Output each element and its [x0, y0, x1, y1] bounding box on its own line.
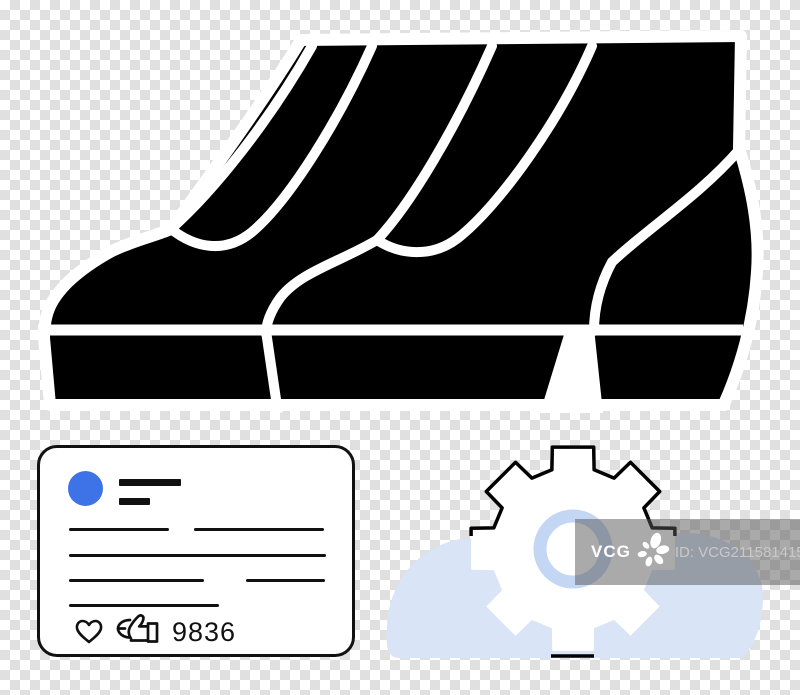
boot-silhouette [44, 36, 758, 405]
text-line [69, 528, 169, 531]
text-line [69, 579, 204, 582]
subtitle-bar [119, 498, 150, 505]
text-line [194, 528, 324, 531]
text-line [246, 579, 325, 582]
watermark-bar: VCG ID: VCG211581415103 [575, 519, 800, 585]
like-count: 9836 [172, 619, 236, 646]
watermark-id-text: ID: VCG211581415103 [675, 544, 800, 561]
watermark-brand: VCG [591, 542, 631, 562]
social-post-card: 9836 [37, 445, 355, 657]
text-line [69, 554, 326, 557]
text-line [69, 604, 219, 607]
vcg-flower-icon [635, 530, 671, 574]
username-bar [119, 479, 181, 486]
boots-pair-icon [38, 36, 758, 413]
heart-icon[interactable] [74, 618, 104, 645]
avatar [68, 471, 103, 506]
thumbs-up-icon[interactable] [114, 611, 160, 645]
transparency-checkerboard-canvas: 9836 VCG ID: VCG211581415103 [0, 0, 800, 695]
